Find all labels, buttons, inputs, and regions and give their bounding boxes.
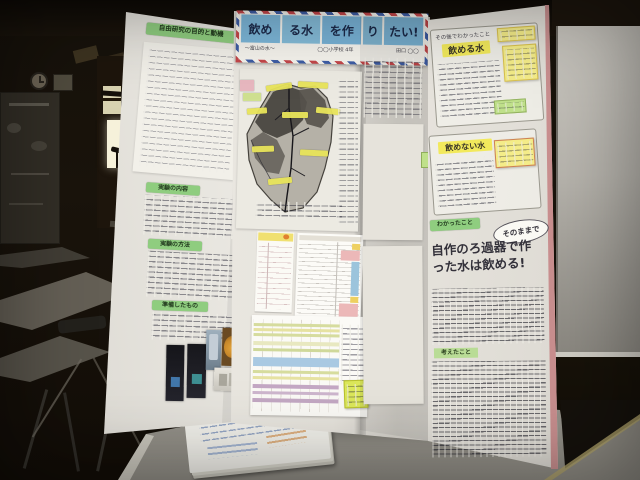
sticky-note: [494, 138, 536, 169]
title-text: を作: [330, 21, 354, 38]
water-ok-title: 飲める水: [442, 40, 491, 57]
classroom-photo: 自由研究の目的と動機 実験の内容 実験の方法 準備したもの 飲め る水: [0, 0, 640, 480]
conclusion-statement: 自作のろ過器で作った水は飲める!: [431, 237, 545, 289]
experiment-photo-bottle: [206, 330, 222, 370]
center-notes-column: [338, 78, 358, 226]
title-text: る水: [289, 21, 313, 38]
left-section1-label: 実験の内容: [158, 184, 188, 193]
title-card: 飲め: [241, 14, 280, 43]
paper-marking-blue: [207, 442, 258, 459]
byline-center: ◯◯小学校 4年: [317, 46, 353, 54]
title-card: を作: [322, 16, 361, 45]
row-blue: [253, 357, 339, 367]
section1-text: [437, 60, 503, 120]
findings-text: [432, 287, 545, 345]
photo-grid-sheet: [362, 124, 423, 241]
results-table-small: [255, 231, 295, 312]
cell-pink: [341, 250, 360, 261]
byline-left: 〜富山の水〜: [245, 44, 275, 52]
inner-fold-notes: [363, 57, 422, 118]
left-section1-text: [143, 195, 239, 240]
map-label-green: [243, 93, 261, 101]
sticky-note: [497, 26, 536, 43]
ceiling-light: [73, 45, 99, 63]
cell-blue: [350, 262, 359, 296]
thoughts-label: 考えたこと: [441, 349, 471, 357]
cell-yellow: [350, 297, 358, 303]
wall-clock: [30, 72, 48, 90]
right-section1-box: その後でわかったこと 飲める水: [430, 22, 545, 127]
right-intro-label: その後でわかったこと: [435, 29, 505, 42]
experiment-photo-bottle-dark: [187, 344, 207, 398]
water-ok-label: 飲める水: [448, 41, 485, 57]
photo-grid-sheet: [362, 246, 423, 405]
water-ng-title: 飲めない水: [438, 138, 493, 154]
results-table-large: [294, 233, 363, 323]
sticky-note: [502, 44, 538, 82]
left-section3-label: 準備したもの: [162, 301, 198, 309]
wall-poster: [0, 92, 60, 244]
sticky-note-green: [494, 98, 527, 114]
bottle-label: [171, 377, 180, 387]
left-intro-sheet: [133, 42, 246, 180]
title-text: 飲め: [248, 20, 272, 37]
left-section2-label: 実験の方法: [160, 240, 190, 249]
wall-chart: [53, 74, 73, 91]
map-caption: [256, 201, 342, 220]
chair-back: [57, 315, 106, 334]
bottle-label: [192, 374, 202, 384]
found-label: わかったこと: [437, 219, 473, 228]
section2-text: [435, 156, 496, 210]
left-section2-text: [146, 251, 240, 302]
title-card: る水: [282, 15, 321, 44]
thoughts-text: [432, 361, 547, 458]
left-section3-header: 準備したもの: [152, 300, 208, 312]
water-ng-label: 飲めない水: [445, 139, 486, 153]
map-label: [282, 112, 308, 118]
experiment-photo-bottle-dark: [166, 345, 185, 401]
right-section2-box: 飲めない水: [428, 128, 541, 215]
map-label: [252, 146, 274, 153]
whiteboard: [556, 26, 640, 356]
conclusion-text: 自作のろ過器で作った水は飲める!: [431, 238, 532, 275]
chair-leg: [63, 392, 80, 471]
cell-yellow: [352, 244, 360, 250]
thoughts-header: 考えたこと: [434, 348, 478, 359]
map-sticky-pink: [240, 80, 254, 91]
